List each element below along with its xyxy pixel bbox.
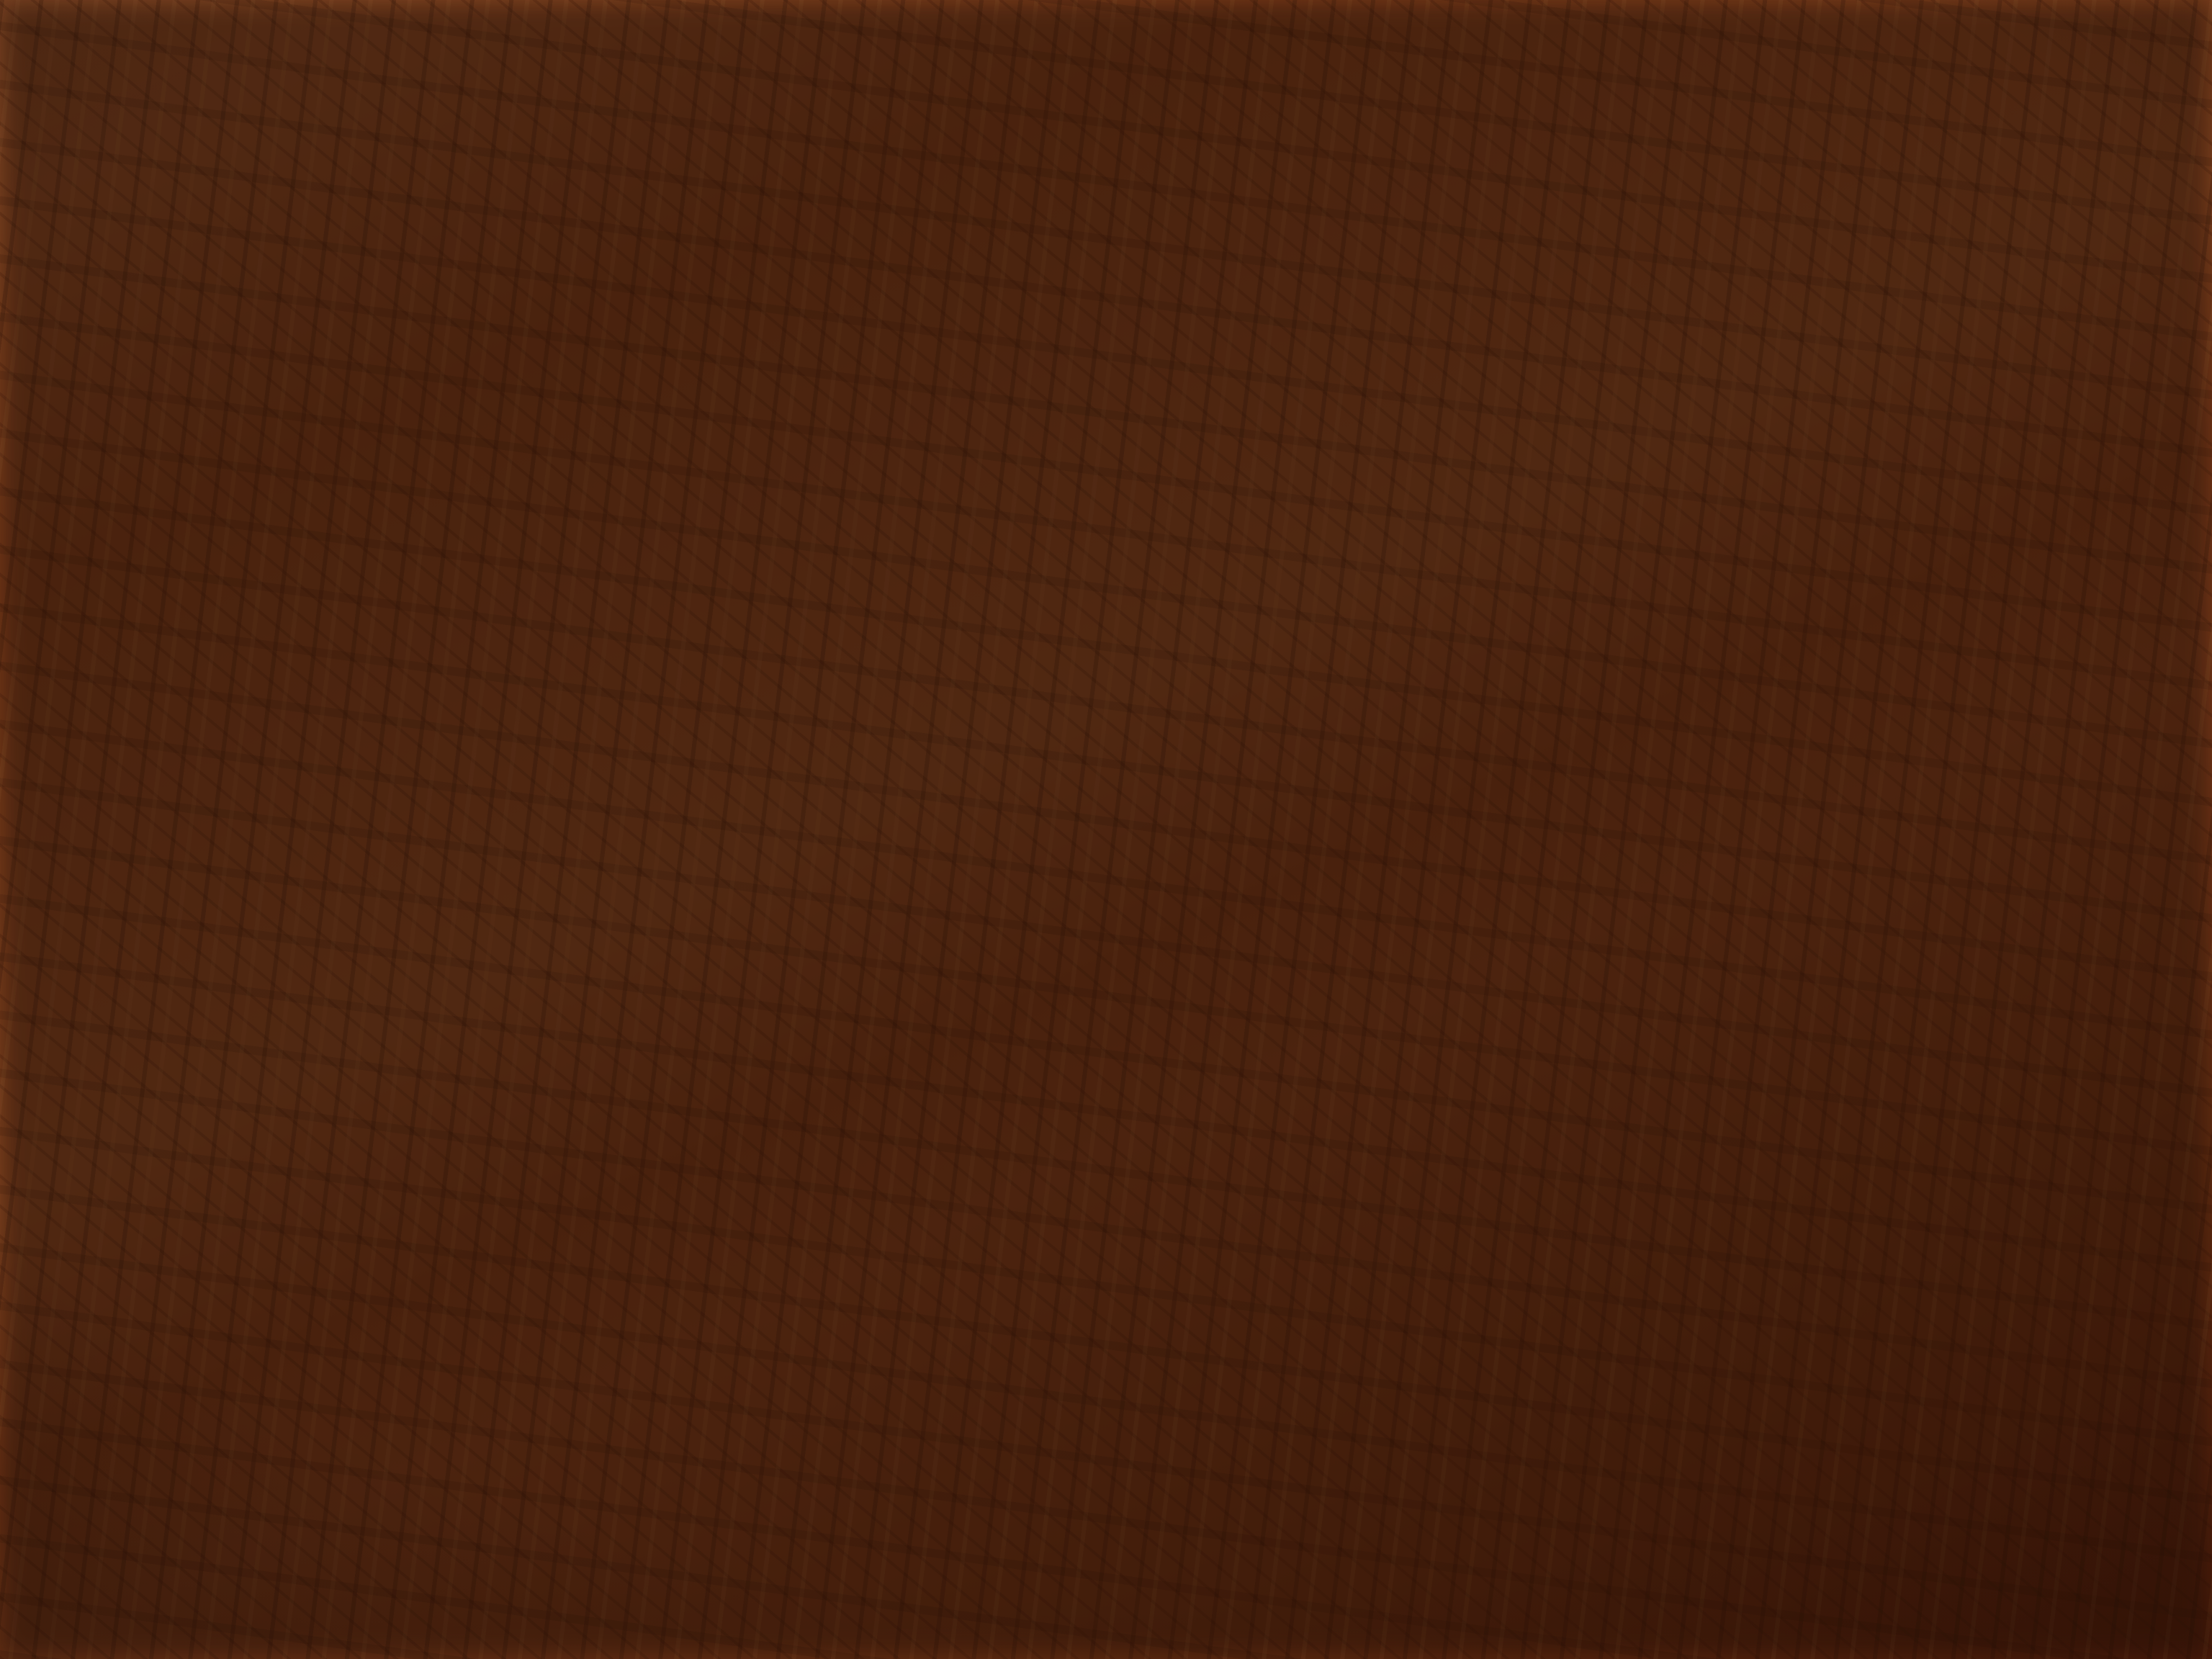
photo-of-parcel-map: UM0049 UB0187 J-CLARK UM0147 LEE FARRAR … (0, 0, 2212, 1659)
photo-frame: UM0049 UB0187 J-CLARK UM0147 LEE FARRAR … (0, 0, 2212, 1659)
paper-cast-shadow (0, 0, 2212, 1659)
